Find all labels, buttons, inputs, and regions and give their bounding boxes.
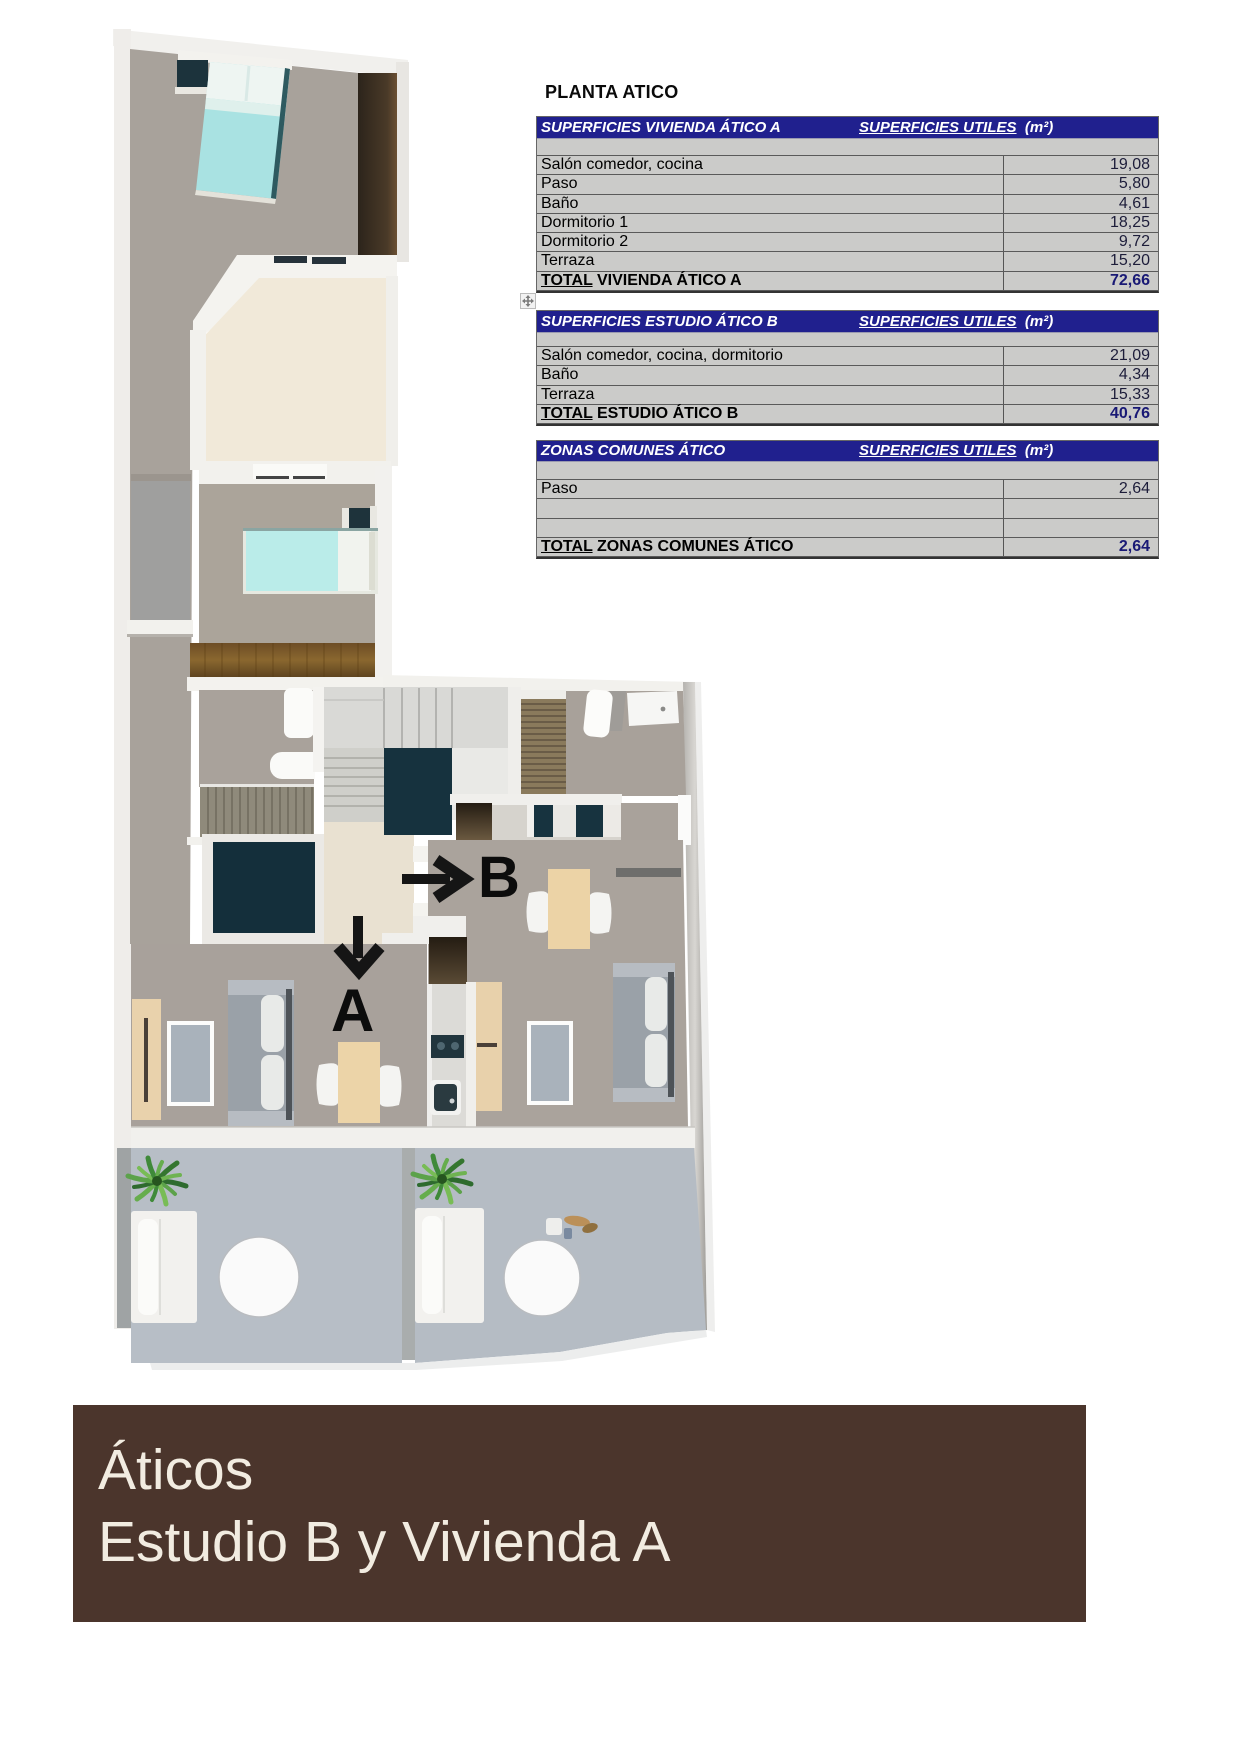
svg-text:B: B — [478, 845, 520, 910]
svg-text:A: A — [331, 977, 374, 1044]
